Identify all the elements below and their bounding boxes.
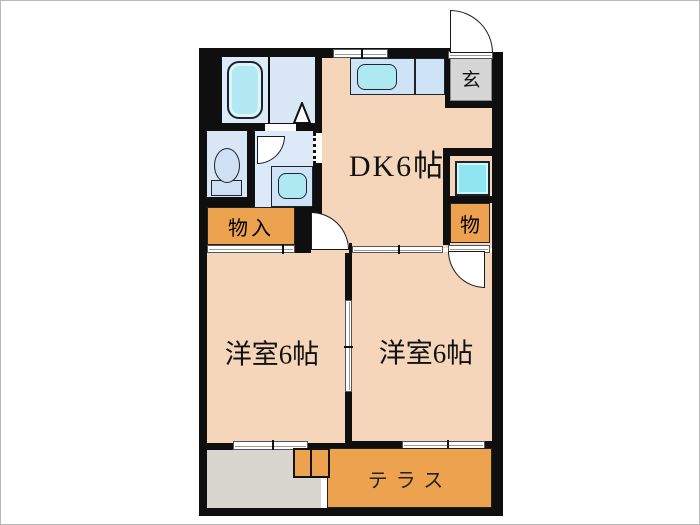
bathtub-icon	[227, 61, 263, 119]
wall-washroom-right	[313, 163, 322, 207]
wall-right	[492, 52, 503, 516]
washbasin-icon	[278, 173, 307, 199]
room-left-label: 洋室6帖	[225, 333, 320, 372]
wall-niche-top	[443, 148, 493, 156]
wall-door-post	[295, 243, 311, 253]
rooms-sliding-door	[345, 300, 352, 392]
washer-pan-icon	[455, 161, 490, 196]
kitchen-sink-icon	[357, 64, 397, 90]
genkan-area: 玄	[450, 55, 492, 101]
closet-left-label: 物入	[228, 212, 274, 241]
shower-icon	[293, 102, 311, 124]
floor-plan: 玄 物 物入 テラス DK6帖 洋室6帖 洋室6帖	[0, 0, 700, 525]
folding-door-dotted	[313, 133, 316, 164]
counter-divider	[414, 58, 416, 95]
terrace-area: テラス	[327, 448, 492, 508]
closet-right-label: 物	[460, 209, 480, 238]
genkan-label: 玄	[461, 65, 480, 92]
room-right-label: 洋室6帖	[379, 332, 474, 371]
dk-label: DK6帖	[349, 141, 445, 185]
toilet-bowl-icon	[214, 148, 240, 183]
wall-left	[199, 48, 207, 516]
terrace-label: テラス	[368, 464, 452, 493]
wall-niche-mid	[443, 196, 495, 203]
wall-bottom	[199, 508, 503, 516]
steps-divider	[310, 450, 312, 476]
dk-room-right-sliding-door	[352, 246, 443, 253]
entry-door-arc	[450, 10, 493, 53]
closet-left-sliding-door	[207, 245, 295, 253]
wall-toilet-divider	[247, 131, 255, 199]
wall-genkan-bottom	[445, 101, 493, 108]
terrace-steps	[293, 448, 330, 478]
closet-right-area: 物	[450, 203, 490, 243]
kitchen-window	[333, 49, 388, 58]
closet-left-area: 物入	[207, 207, 295, 245]
